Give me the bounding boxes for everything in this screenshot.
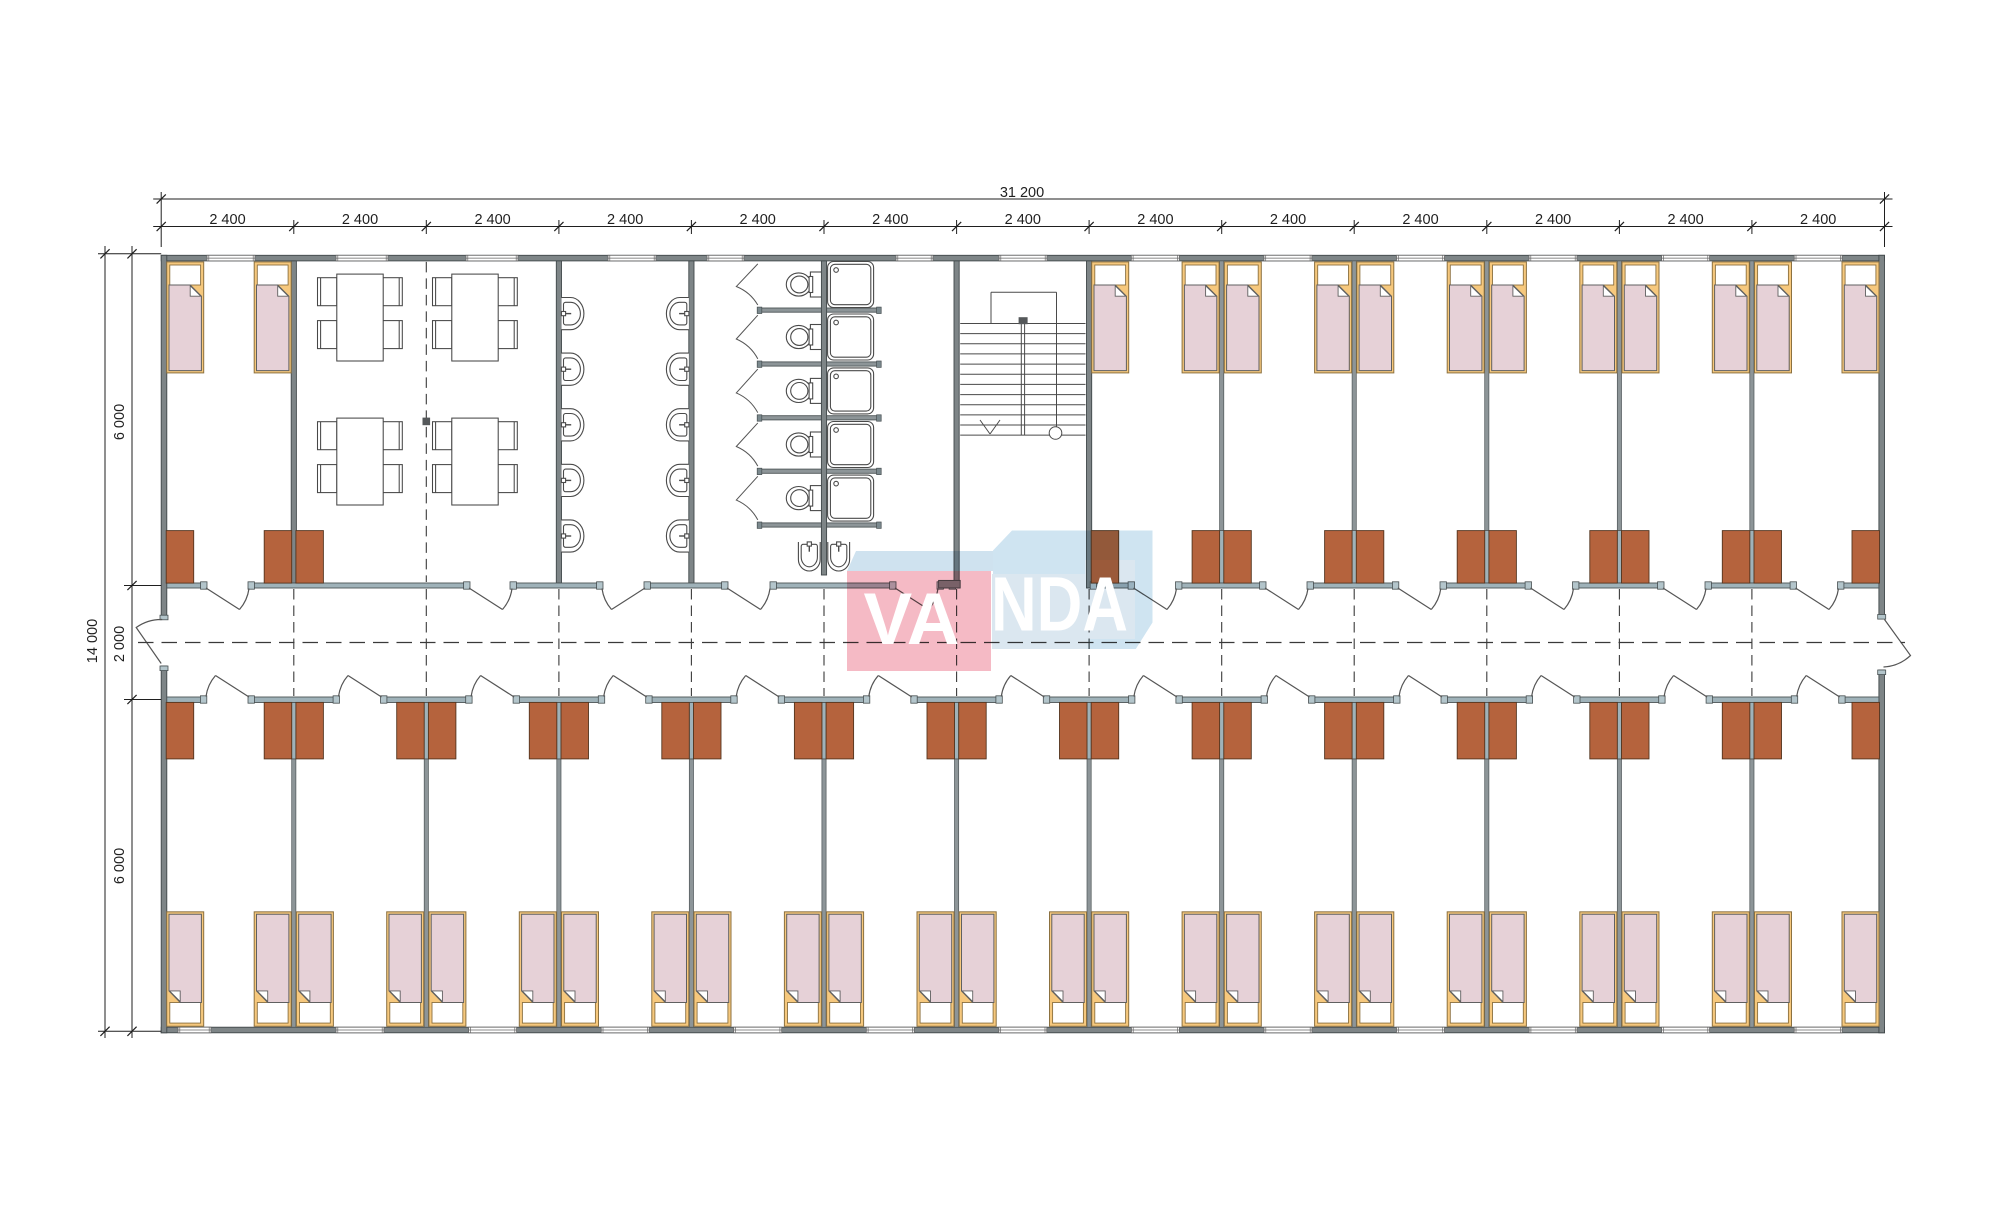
svg-text:2 400: 2 400	[1667, 212, 1703, 228]
svg-text:6 000: 6 000	[112, 848, 128, 884]
svg-text:2 400: 2 400	[1270, 212, 1306, 228]
svg-text:2 400: 2 400	[474, 212, 510, 228]
svg-text:2 400: 2 400	[872, 212, 908, 228]
svg-text:31 200: 31 200	[1000, 185, 1044, 201]
svg-text:14 000: 14 000	[85, 619, 101, 663]
svg-text:2 400: 2 400	[1005, 212, 1041, 228]
svg-text:NDA: NDA	[991, 562, 1128, 648]
svg-text:2 400: 2 400	[1535, 212, 1571, 228]
svg-text:2 400: 2 400	[1137, 212, 1173, 228]
svg-text:VA: VA	[864, 579, 960, 660]
svg-text:2 400: 2 400	[607, 212, 643, 228]
svg-text:2 400: 2 400	[1402, 212, 1438, 228]
svg-text:6 000: 6 000	[112, 404, 128, 440]
svg-text:2 400: 2 400	[342, 212, 378, 228]
svg-text:2 000: 2 000	[112, 626, 128, 662]
svg-text:2 400: 2 400	[209, 212, 245, 228]
svg-text:2 400: 2 400	[1800, 212, 1836, 228]
svg-text:2 400: 2 400	[740, 212, 776, 228]
